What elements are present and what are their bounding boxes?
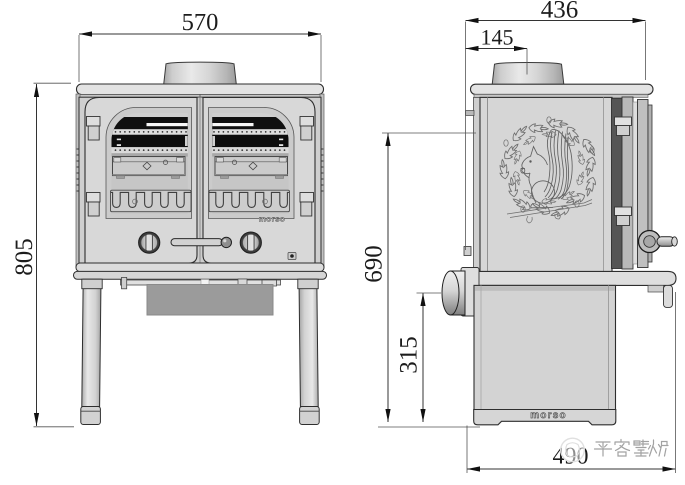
svg-text:145: 145 (481, 25, 514, 50)
svg-text:morso: morso (530, 410, 567, 421)
svg-text:805: 805 (11, 238, 38, 276)
svg-text:570: 570 (182, 9, 219, 36)
svg-text:436: 436 (541, 0, 579, 24)
svg-text:690: 690 (361, 245, 388, 283)
svg-text:morso: morso (259, 215, 285, 224)
svg-text:315: 315 (396, 336, 423, 374)
